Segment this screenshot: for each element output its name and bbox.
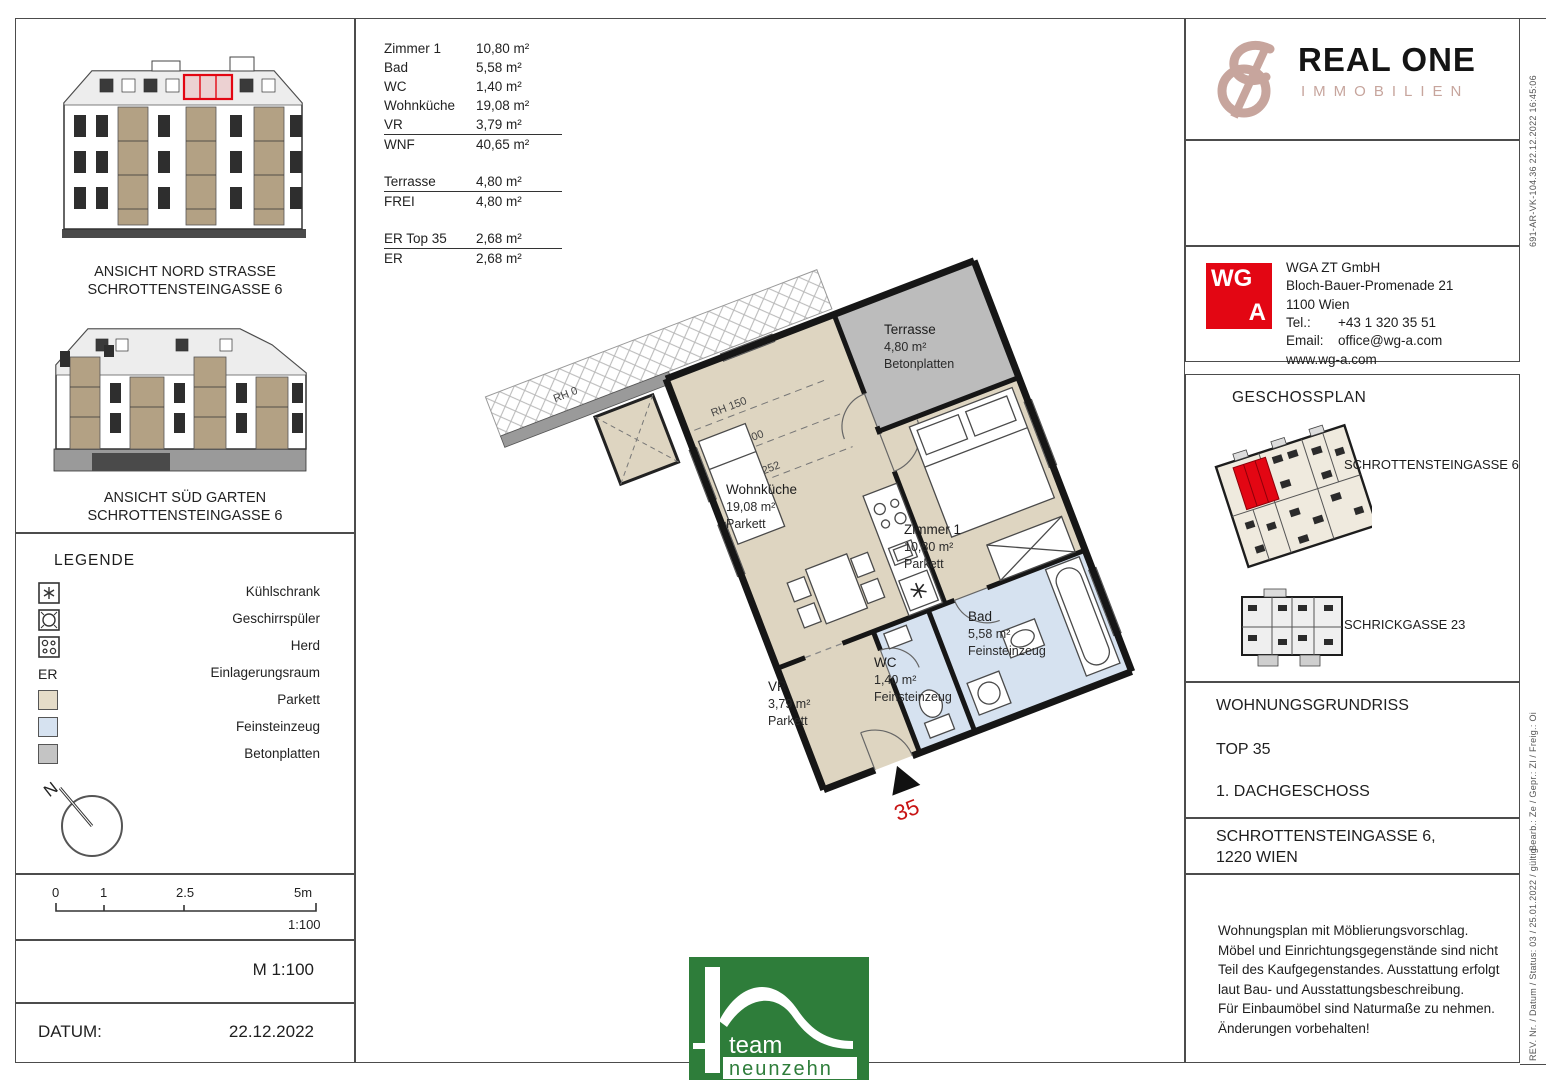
entrance-arrow <box>883 761 920 796</box>
legend-item-betonplatten: Betonplatten <box>16 742 354 769</box>
area-row-total: WNF40,65 m² <box>384 135 562 154</box>
disclaimer-panel: Wohnungsplan mit Möblierungsvorschlag. M… <box>1185 874 1520 1063</box>
legend-title: LEGENDE <box>54 552 135 570</box>
scale-text: M 1:100 <box>253 960 314 980</box>
rev-stamp: REV. Nr. / Datum / Status: 03 / 25.01.20… <box>1528 848 1538 1061</box>
area-row: Zimmer 110,80 m² <box>384 39 562 58</box>
project-address: SCHROTTENSTEINGASSE 6, 1220 WIEN <box>1216 827 1436 869</box>
feinsteinzeug-swatch <box>38 717 58 737</box>
parkett-swatch <box>38 690 58 710</box>
svg-text:1:100: 1:100 <box>288 917 321 932</box>
architect-address: Bloch-Bauer-Promenade 21 <box>1286 277 1453 295</box>
svg-text:1: 1 <box>100 885 107 900</box>
area-row: Terrasse4,80 m² <box>384 172 562 192</box>
svg-text:Betonplatten: Betonplatten <box>884 357 954 371</box>
elevation-south-caption: ANSICHT SÜD GARTEN SCHROTTENSTEINGASSE 6 <box>16 489 354 525</box>
dishwasher-icon <box>38 609 60 631</box>
area-row: VR3,79 m² <box>384 115 562 135</box>
architect-city: 1100 Wien <box>1286 296 1453 314</box>
brand-subtitle: IMMOBILIEN <box>1301 83 1469 100</box>
plan-panel: Zimmer 110,80 m² Bad5,58 m² WC1,40 m² Wo… <box>355 18 1185 1063</box>
svg-text:Wohnküche: Wohnküche <box>726 482 797 497</box>
er-key: ER <box>38 663 60 685</box>
legend-item-parkett: Parkett <box>16 688 354 715</box>
svg-text:Zimmer 1: Zimmer 1 <box>904 522 961 537</box>
balconies <box>118 107 284 225</box>
disclaimer-text: Wohnungsplan mit Möblierungsvorschlag. M… <box>1218 921 1508 1038</box>
svg-text:4,80 m²: 4,80 m² <box>884 340 926 354</box>
legend-item-dishwasher: Geschirrspüler <box>16 607 354 634</box>
architect-web: www.wg-a.com <box>1286 351 1453 369</box>
geschossplan-label-2: SCHRICKGASSE 23 <box>1344 617 1465 632</box>
team-neunzehn-logo: team neunzehn <box>689 957 869 1080</box>
geschossplan-mini-1 <box>1202 415 1372 583</box>
elevation-north-caption: ANSICHT NORD STRASSE SCHROTTENSTEINGASSE… <box>16 263 354 299</box>
architect-info: WGA ZT GmbH Bloch-Bauer-Promenade 21 110… <box>1286 259 1453 369</box>
elevation-south-drawing <box>34 301 336 483</box>
datum-panel: DATUM: 22.12.2022 <box>15 1003 355 1063</box>
brand-name: REAL ONE <box>1298 41 1476 79</box>
plot-stamp: 691-AR-VK-104.36 22.12.2022 16:45:06 <box>1528 75 1538 247</box>
area-row-total: FREI4,80 m² <box>384 192 562 211</box>
geschossplan-panel: GESCHOSSPLAN <box>1185 374 1520 682</box>
meta-strip: 691-AR-VK-104.36 22.12.2022 16:45:06 Bea… <box>1520 18 1546 1065</box>
apartment-rotated-group: RH 0 RH 150 RH 2 <box>485 239 1157 909</box>
fridge-icon <box>38 582 60 604</box>
svg-text:1,40 m²: 1,40 m² <box>874 673 916 687</box>
brand-panel: REAL ONE IMMOBILIEN <box>1185 18 1520 140</box>
empty-panel <box>1185 140 1520 246</box>
svg-text:10,80 m²: 10,80 m² <box>904 540 953 554</box>
titleblock-panel: WOHNUNGSGRUNDRISS TOP 35 1. DACHGESCHOSS <box>1185 682 1520 818</box>
scalebar: 0 1 2.5 5m 1:100 <box>16 875 354 939</box>
svg-text:VR: VR <box>768 679 787 694</box>
stove-icon <box>38 636 60 658</box>
legend-item-feinsteinzeug: Feinsteinzeug <box>16 715 354 742</box>
geschossplan-label-1: SCHROTTENSTEINGASSE 6 <box>1344 457 1519 472</box>
scale-panel: M 1:100 <box>15 940 355 1003</box>
scalebar-panel: 0 1 2.5 5m 1:100 <box>15 874 355 940</box>
architect-tel: +43 1 320 35 51 <box>1338 315 1436 330</box>
svg-text:neunzehn: neunzehn <box>729 1058 833 1080</box>
datum-label: DATUM: <box>38 1022 102 1042</box>
svg-text:5,58 m²: 5,58 m² <box>968 627 1010 641</box>
wga-logo: WG A <box>1206 263 1272 329</box>
datum-value: 22.12.2022 <box>229 1022 314 1042</box>
realone-logo-icon <box>1208 33 1292 125</box>
svg-text:Terrasse: Terrasse <box>884 322 936 337</box>
bearb-stamp: Bearb.: Ze / Gepr.: Zl / Freig.: Oi <box>1528 712 1538 851</box>
svg-text:5m: 5m <box>294 885 312 900</box>
elevation-north-drawing <box>34 41 336 259</box>
legend-item-fridge: Kühlschrank <box>16 580 354 607</box>
svg-text:19,08 m²: 19,08 m² <box>726 500 775 514</box>
unit-number: 35 <box>891 794 923 826</box>
svg-text:team: team <box>729 1032 782 1059</box>
architect-email: office@wg-a.com <box>1338 333 1442 348</box>
floorplan-drawing: RH 0 RH 150 RH 2 <box>416 239 1176 919</box>
svg-text:3,79 m²: 3,79 m² <box>768 697 810 711</box>
svg-text:N: N <box>40 778 61 801</box>
svg-text:Feinsteinzeug: Feinsteinzeug <box>874 690 952 704</box>
geschossplan-title: GESCHOSSPLAN <box>1232 389 1366 407</box>
unit-highlight <box>184 75 232 99</box>
doc-type: WOHNUNGSGRUNDRISS <box>1216 697 1409 715</box>
legend-item-er: ER Einlagerungsraum <box>16 661 354 688</box>
elevations-panel: ANSICHT NORD STRASSE SCHROTTENSTEINGASSE… <box>15 18 355 533</box>
area-table: Zimmer 110,80 m² Bad5,58 m² WC1,40 m² Wo… <box>384 39 562 268</box>
address-panel: SCHROTTENSTEINGASSE 6, 1220 WIEN <box>1185 818 1520 874</box>
north-arrow-icon: N <box>30 772 150 868</box>
svg-text:Bad: Bad <box>968 609 992 624</box>
architect-panel: WG A WGA ZT GmbH Bloch-Bauer-Promenade 2… <box>1185 246 1520 362</box>
legend-item-stove: Herd <box>16 634 354 661</box>
svg-text:Parkett: Parkett <box>904 557 944 571</box>
svg-text:Parkett: Parkett <box>768 714 808 728</box>
svg-text:0: 0 <box>52 885 59 900</box>
svg-text:WC: WC <box>874 655 897 670</box>
svg-text:2.5: 2.5 <box>176 885 194 900</box>
unit-label: TOP 35 <box>1216 741 1271 759</box>
legend-panel: LEGENDE Kühlschrank Geschirrspüler Herd <box>15 533 355 874</box>
area-row: Bad5,58 m² <box>384 58 562 77</box>
area-row: Wohnküche19,08 m² <box>384 96 562 115</box>
geschossplan-mini-2 <box>1234 587 1354 675</box>
betonplatten-swatch <box>38 744 58 764</box>
floor-label: 1. DACHGESCHOSS <box>1216 783 1370 801</box>
architect-name: WGA ZT GmbH <box>1286 259 1453 277</box>
svg-text:Parkett: Parkett <box>726 517 766 531</box>
area-row: WC1,40 m² <box>384 77 562 96</box>
plan-sheet: ANSICHT NORD STRASSE SCHROTTENSTEINGASSE… <box>0 0 1546 1080</box>
svg-text:Feinsteinzeug: Feinsteinzeug <box>968 644 1046 658</box>
